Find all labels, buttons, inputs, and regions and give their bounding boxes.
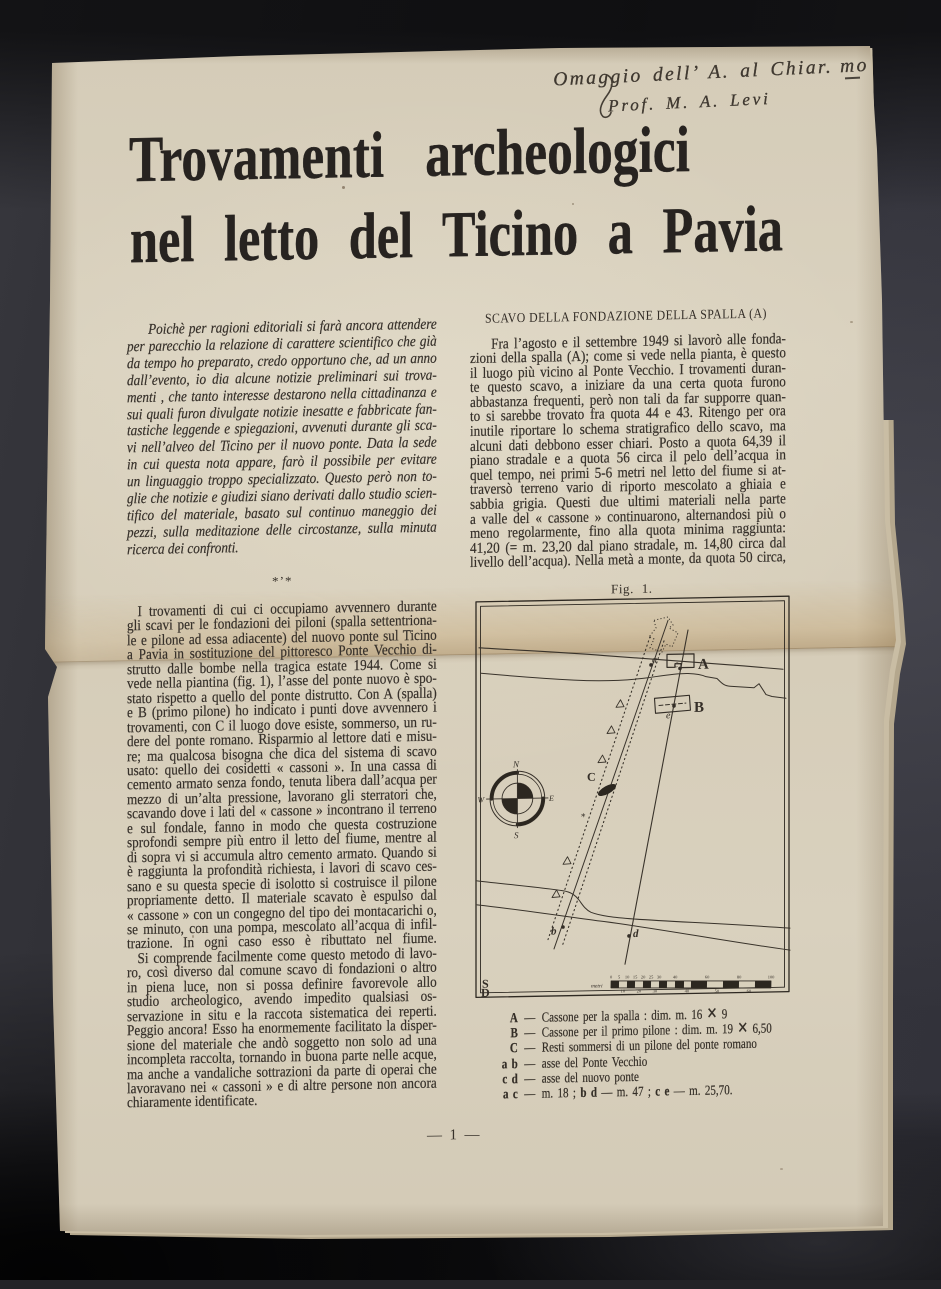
svg-text:10: 10 [621, 988, 626, 993]
svg-text:W: W [478, 795, 486, 804]
svg-text:a: a [652, 655, 657, 666]
svg-text:40: 40 [673, 974, 678, 979]
svg-text:80: 80 [737, 974, 742, 979]
svg-text:b: b [551, 925, 557, 937]
svg-text:20: 20 [641, 974, 646, 979]
svg-text:100: 100 [768, 974, 775, 979]
svg-text:A: A [698, 657, 709, 673]
svg-text:⁎: ⁎ [581, 809, 586, 819]
svg-text:60: 60 [705, 974, 710, 979]
svg-text:D: D [481, 986, 490, 1000]
svg-text:metri: metri [591, 983, 603, 989]
svg-text:5: 5 [618, 974, 621, 979]
svg-text:C: C [587, 770, 596, 784]
svg-text:0: 0 [610, 974, 613, 979]
svg-text:30: 30 [657, 974, 662, 979]
svg-text:25: 25 [649, 974, 654, 979]
svg-text:20: 20 [637, 988, 642, 993]
svg-text:10: 10 [625, 974, 630, 979]
svg-text:c: c [674, 659, 679, 670]
svg-text:15: 15 [633, 974, 638, 979]
svg-text:E: E [548, 794, 554, 803]
svg-text:S: S [514, 830, 519, 840]
svg-text:B: B [694, 700, 704, 716]
svg-text:d: d [633, 928, 639, 940]
svg-text:e: e [666, 710, 671, 721]
svg-text:N: N [512, 759, 520, 769]
